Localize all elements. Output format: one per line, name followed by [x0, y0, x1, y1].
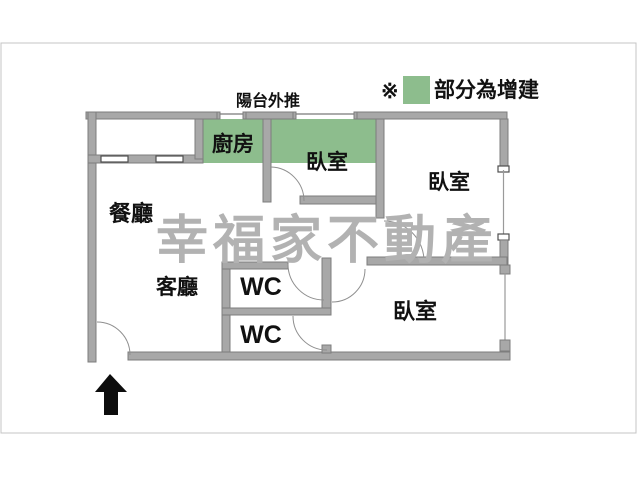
label-balcony-note: 陽台外推 [236, 91, 300, 110]
wall-right-upper [500, 119, 508, 167]
wall-top-middle [245, 112, 294, 119]
wall-kitchen-bedroom [263, 119, 271, 202]
label-wc-top: WC [240, 273, 282, 301]
label-bedroom-top-middle: 臥室 [306, 150, 348, 174]
wall-wc2-right-stub [322, 345, 331, 353]
door-bedroom1 [271, 167, 304, 201]
balcony-window-2-tick-l [293, 112, 296, 119]
label-bedroom-bottom-right: 臥室 [393, 299, 437, 324]
door-entrance [97, 322, 130, 355]
legend-label: 部分為增建 [434, 78, 539, 102]
balcony-window-2-tick-r [354, 112, 357, 119]
wall-bottom [128, 352, 510, 360]
label-dining-room: 餐廳 [109, 201, 153, 226]
window-dining-1 [101, 156, 128, 162]
label-wc-bottom: WC [240, 321, 282, 349]
north-arrow-icon [95, 374, 127, 415]
wall-left [88, 112, 96, 362]
wall-bedroom1-bottom [300, 196, 376, 204]
wall-bedrooms-divider-vertical [376, 119, 384, 218]
balcony-window-1-tick-r [243, 112, 246, 119]
window-dining-2 [156, 156, 183, 162]
wall-right-lower-stub-top [500, 265, 510, 274]
legend-swatch [403, 76, 430, 104]
label-living-room: 客廳 [156, 275, 198, 299]
wall-top-right [357, 112, 507, 119]
wall-top-left [86, 112, 218, 119]
balcony-window-1-tick-l [217, 112, 220, 119]
floor-plan-page: 廚房 臥室 臥室 餐廳 客廳 臥室 WC WC 陽台外推 ※ 部分為增建 幸福家… [0, 0, 640, 480]
legend-marker: ※ [381, 80, 399, 103]
door-hallway [332, 269, 365, 302]
wall-right-lower-stub-bottom [500, 340, 510, 351]
floor-plan-drawing: 廚房 臥室 臥室 餐廳 客廳 臥室 WC WC 陽台外推 ※ 部分為增建 幸福家… [0, 0, 640, 480]
wall-wc-left [222, 262, 230, 352]
label-bedroom-top-right: 臥室 [428, 170, 470, 194]
wall-kitchen-left [195, 119, 203, 159]
label-kitchen: 廚房 [212, 132, 254, 156]
window-right-cap-mid [498, 234, 509, 240]
watermark-text: 幸福家不動產 [156, 212, 498, 270]
wall-wc-divider [222, 308, 331, 315]
